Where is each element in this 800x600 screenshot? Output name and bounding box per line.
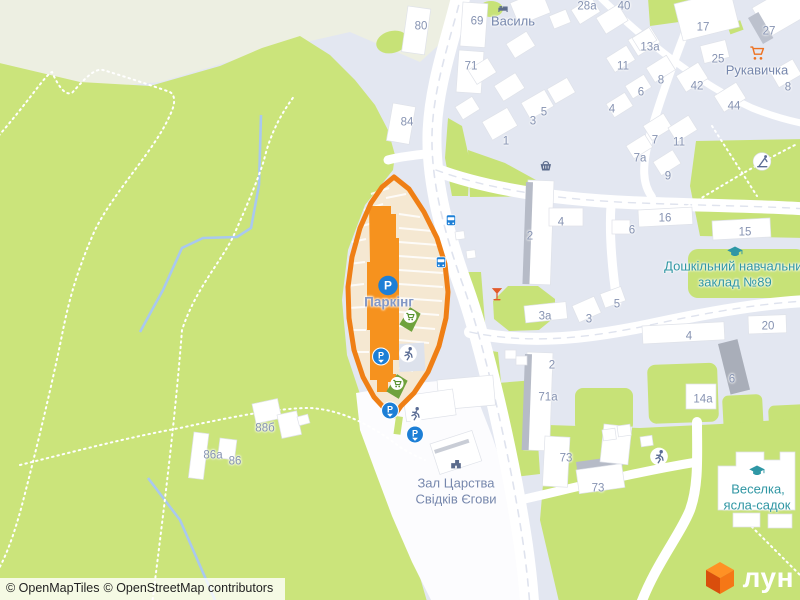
sports-icon [650,447,669,471]
playground-icon [753,152,772,176]
mall-pin-icon[interactable] [386,373,409,405]
lun-logo[interactable]: лун [705,561,794,595]
school-icon [727,245,744,263]
school-icon [749,464,766,482]
map-attribution: © OpenMapTiles© OpenStreetMap contributo… [0,578,285,600]
osm-link[interactable]: © OpenStreetMap contributors [104,581,274,595]
bus-stop-icon [445,214,458,233]
parking-entrance-icon[interactable] [372,347,391,371]
sports-icon [406,404,425,428]
lun-cube-icon [705,561,735,595]
bus-stop-icon [435,256,448,275]
supermarket-cart-icon [749,44,766,66]
parking-entrance-icon[interactable] [406,425,425,449]
map-tiles: P P [0,0,800,600]
bar-icon [489,286,505,307]
sports-icon [399,344,418,368]
parking-icon[interactable] [378,275,399,301]
lun-logo-text: лун [743,562,794,594]
openmaptiles-link[interactable]: © OpenMapTiles [6,581,100,595]
map-canvas[interactable]: P P [0,0,800,600]
mall-pin-icon[interactable] [399,306,422,338]
hotel-icon [497,0,510,18]
worship-icon [449,457,464,476]
shop-basket-icon [538,157,553,177]
